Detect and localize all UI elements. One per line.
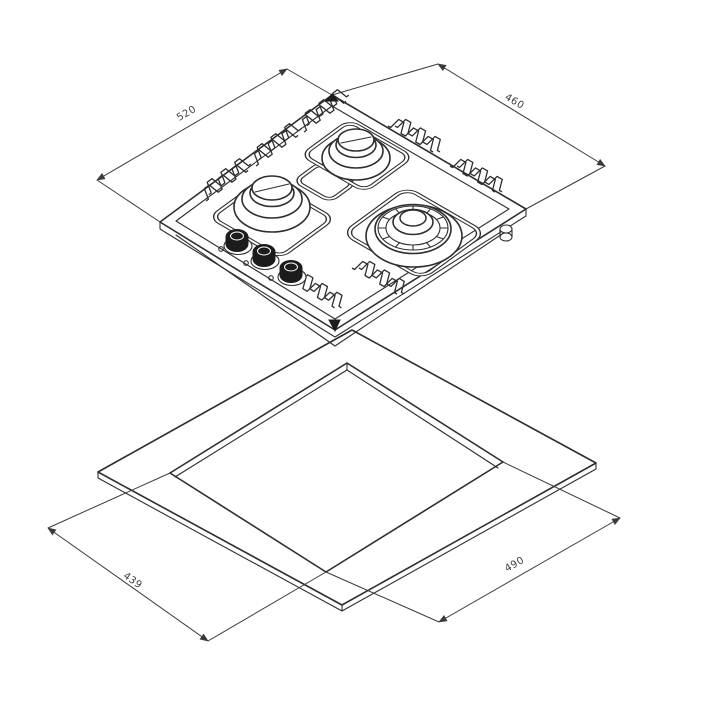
- dimension-label-460: 460: [503, 92, 526, 112]
- burner-wok: [366, 205, 462, 268]
- dimension-label-520: 520: [175, 104, 198, 124]
- hob-isometric-view: 520 460: [97, 64, 605, 346]
- dimension-label-490: 490: [503, 555, 526, 575]
- dimension-line-460: [438, 64, 605, 166]
- gas-inlet: [500, 225, 512, 241]
- worktop-cutout-view: 439 490: [48, 330, 620, 641]
- installation-diagram: 439 490 520 460: [0, 0, 720, 720]
- installation-diagram-page: 439 490 520 460: [0, 0, 720, 720]
